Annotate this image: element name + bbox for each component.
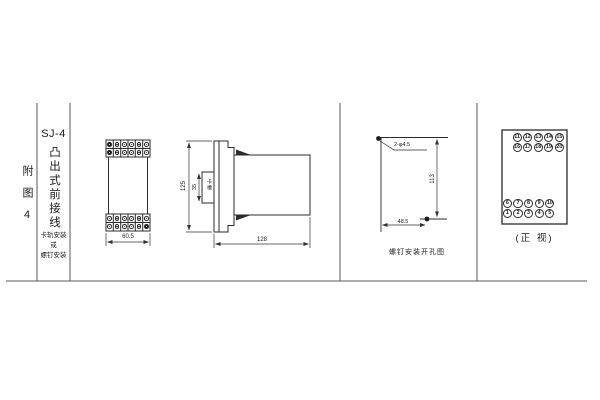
notch-dimension: 35 xyxy=(192,184,198,190)
terminal-row: 678910 xyxy=(503,199,555,208)
depth-dimension: 128 xyxy=(214,237,310,243)
terminal-4: 4 xyxy=(535,209,544,218)
front-view-top-terminals xyxy=(106,140,150,157)
front-face-caption: (正 视) xyxy=(502,230,567,244)
terminal-screw xyxy=(115,150,120,155)
notch-label: 卡槽 xyxy=(206,179,213,191)
drill-plan-caption: 螺钉安装开孔图 xyxy=(376,247,458,257)
terminal-17: 17 xyxy=(523,143,532,152)
terminal-group-top: 11121314151617181920 xyxy=(513,133,565,153)
terminal-16: 16 xyxy=(513,143,522,152)
terminal-12: 12 xyxy=(523,133,532,142)
terminal-screw xyxy=(137,142,142,147)
terminal-screw xyxy=(107,150,112,155)
terminal-screw xyxy=(129,216,134,221)
terminal-screw xyxy=(129,224,134,229)
terminal-20: 20 xyxy=(555,143,564,152)
model-label: SJ-4 xyxy=(37,128,70,140)
side-view-outline xyxy=(202,141,310,232)
terminal-6: 6 xyxy=(503,199,512,208)
terminal-row: 1112131415 xyxy=(513,133,565,142)
terminal-screw xyxy=(122,224,127,229)
terminal-screw xyxy=(107,224,112,229)
mounting-note-line: 卡轨安装 xyxy=(36,231,71,241)
front-view-bottom-terminals xyxy=(106,214,150,231)
terminal-10: 10 xyxy=(545,199,554,208)
frame-lines xyxy=(6,103,587,281)
terminal-screw xyxy=(115,142,120,147)
terminal-screw xyxy=(122,142,127,147)
terminal-18: 18 xyxy=(534,143,543,152)
terminal-panel: 11121314151617181920 67891012345 xyxy=(502,130,567,224)
mounting-note: 卡轨安装 或 螺钉安装 xyxy=(36,231,71,261)
hole-horizontal-dimension: 48.5 xyxy=(390,219,416,225)
width-dimension: 60.5 xyxy=(106,234,150,240)
terminal-screw xyxy=(137,224,142,229)
height-dimension: 125 xyxy=(181,181,187,191)
terminal-screw xyxy=(144,142,149,147)
terminal-7: 7 xyxy=(513,199,522,208)
terminal-3: 3 xyxy=(524,209,533,218)
mounting-note-line: 螺钉安装 xyxy=(36,251,71,261)
terminal-screw xyxy=(115,216,120,221)
terminal-9: 9 xyxy=(535,199,544,208)
drill-plan-dimensions xyxy=(383,140,438,226)
terminal-screw xyxy=(129,150,134,155)
side-view-dimensions xyxy=(186,141,310,248)
terminal-11: 11 xyxy=(513,133,522,142)
figure-number-label: 附图4 xyxy=(19,165,35,232)
terminal-2: 2 xyxy=(513,209,522,218)
terminal-13: 13 xyxy=(534,133,543,142)
terminal-screw xyxy=(137,150,142,155)
terminal-group-bottom: 67891012345 xyxy=(503,199,555,219)
engineering-drawing-page: SJ-4 凸出式前接线 附图4 卡轨安装 或 螺钉安装 60.5 125 35 … xyxy=(0,0,600,400)
terminal-19: 19 xyxy=(544,143,553,152)
hole-size-label: 2-φ4.5 xyxy=(394,142,410,148)
terminal-screw xyxy=(144,216,149,221)
terminal-row: 1617181920 xyxy=(513,143,565,152)
terminal-8: 8 xyxy=(524,199,533,208)
terminal-screw xyxy=(129,142,134,147)
terminal-row: 12345 xyxy=(503,209,555,218)
terminal-5: 5 xyxy=(545,209,554,218)
terminal-1: 1 xyxy=(503,209,512,218)
terminal-14: 14 xyxy=(544,133,553,142)
drill-hole-bottom xyxy=(425,217,430,222)
terminal-screw xyxy=(122,150,127,155)
terminal-15: 15 xyxy=(555,133,564,142)
type-label: 凸出式前接线 xyxy=(46,146,62,230)
hole-vertical-dimension: 113 xyxy=(430,174,436,184)
terminal-screw xyxy=(107,142,112,147)
terminal-screw xyxy=(107,216,112,221)
terminal-screw xyxy=(122,216,127,221)
terminal-screw xyxy=(137,216,142,221)
terminal-screw xyxy=(144,150,149,155)
drill-hole-top xyxy=(376,136,381,141)
terminal-screw xyxy=(115,224,120,229)
mounting-note-line: 或 xyxy=(36,241,71,251)
terminal-screw xyxy=(144,224,149,229)
